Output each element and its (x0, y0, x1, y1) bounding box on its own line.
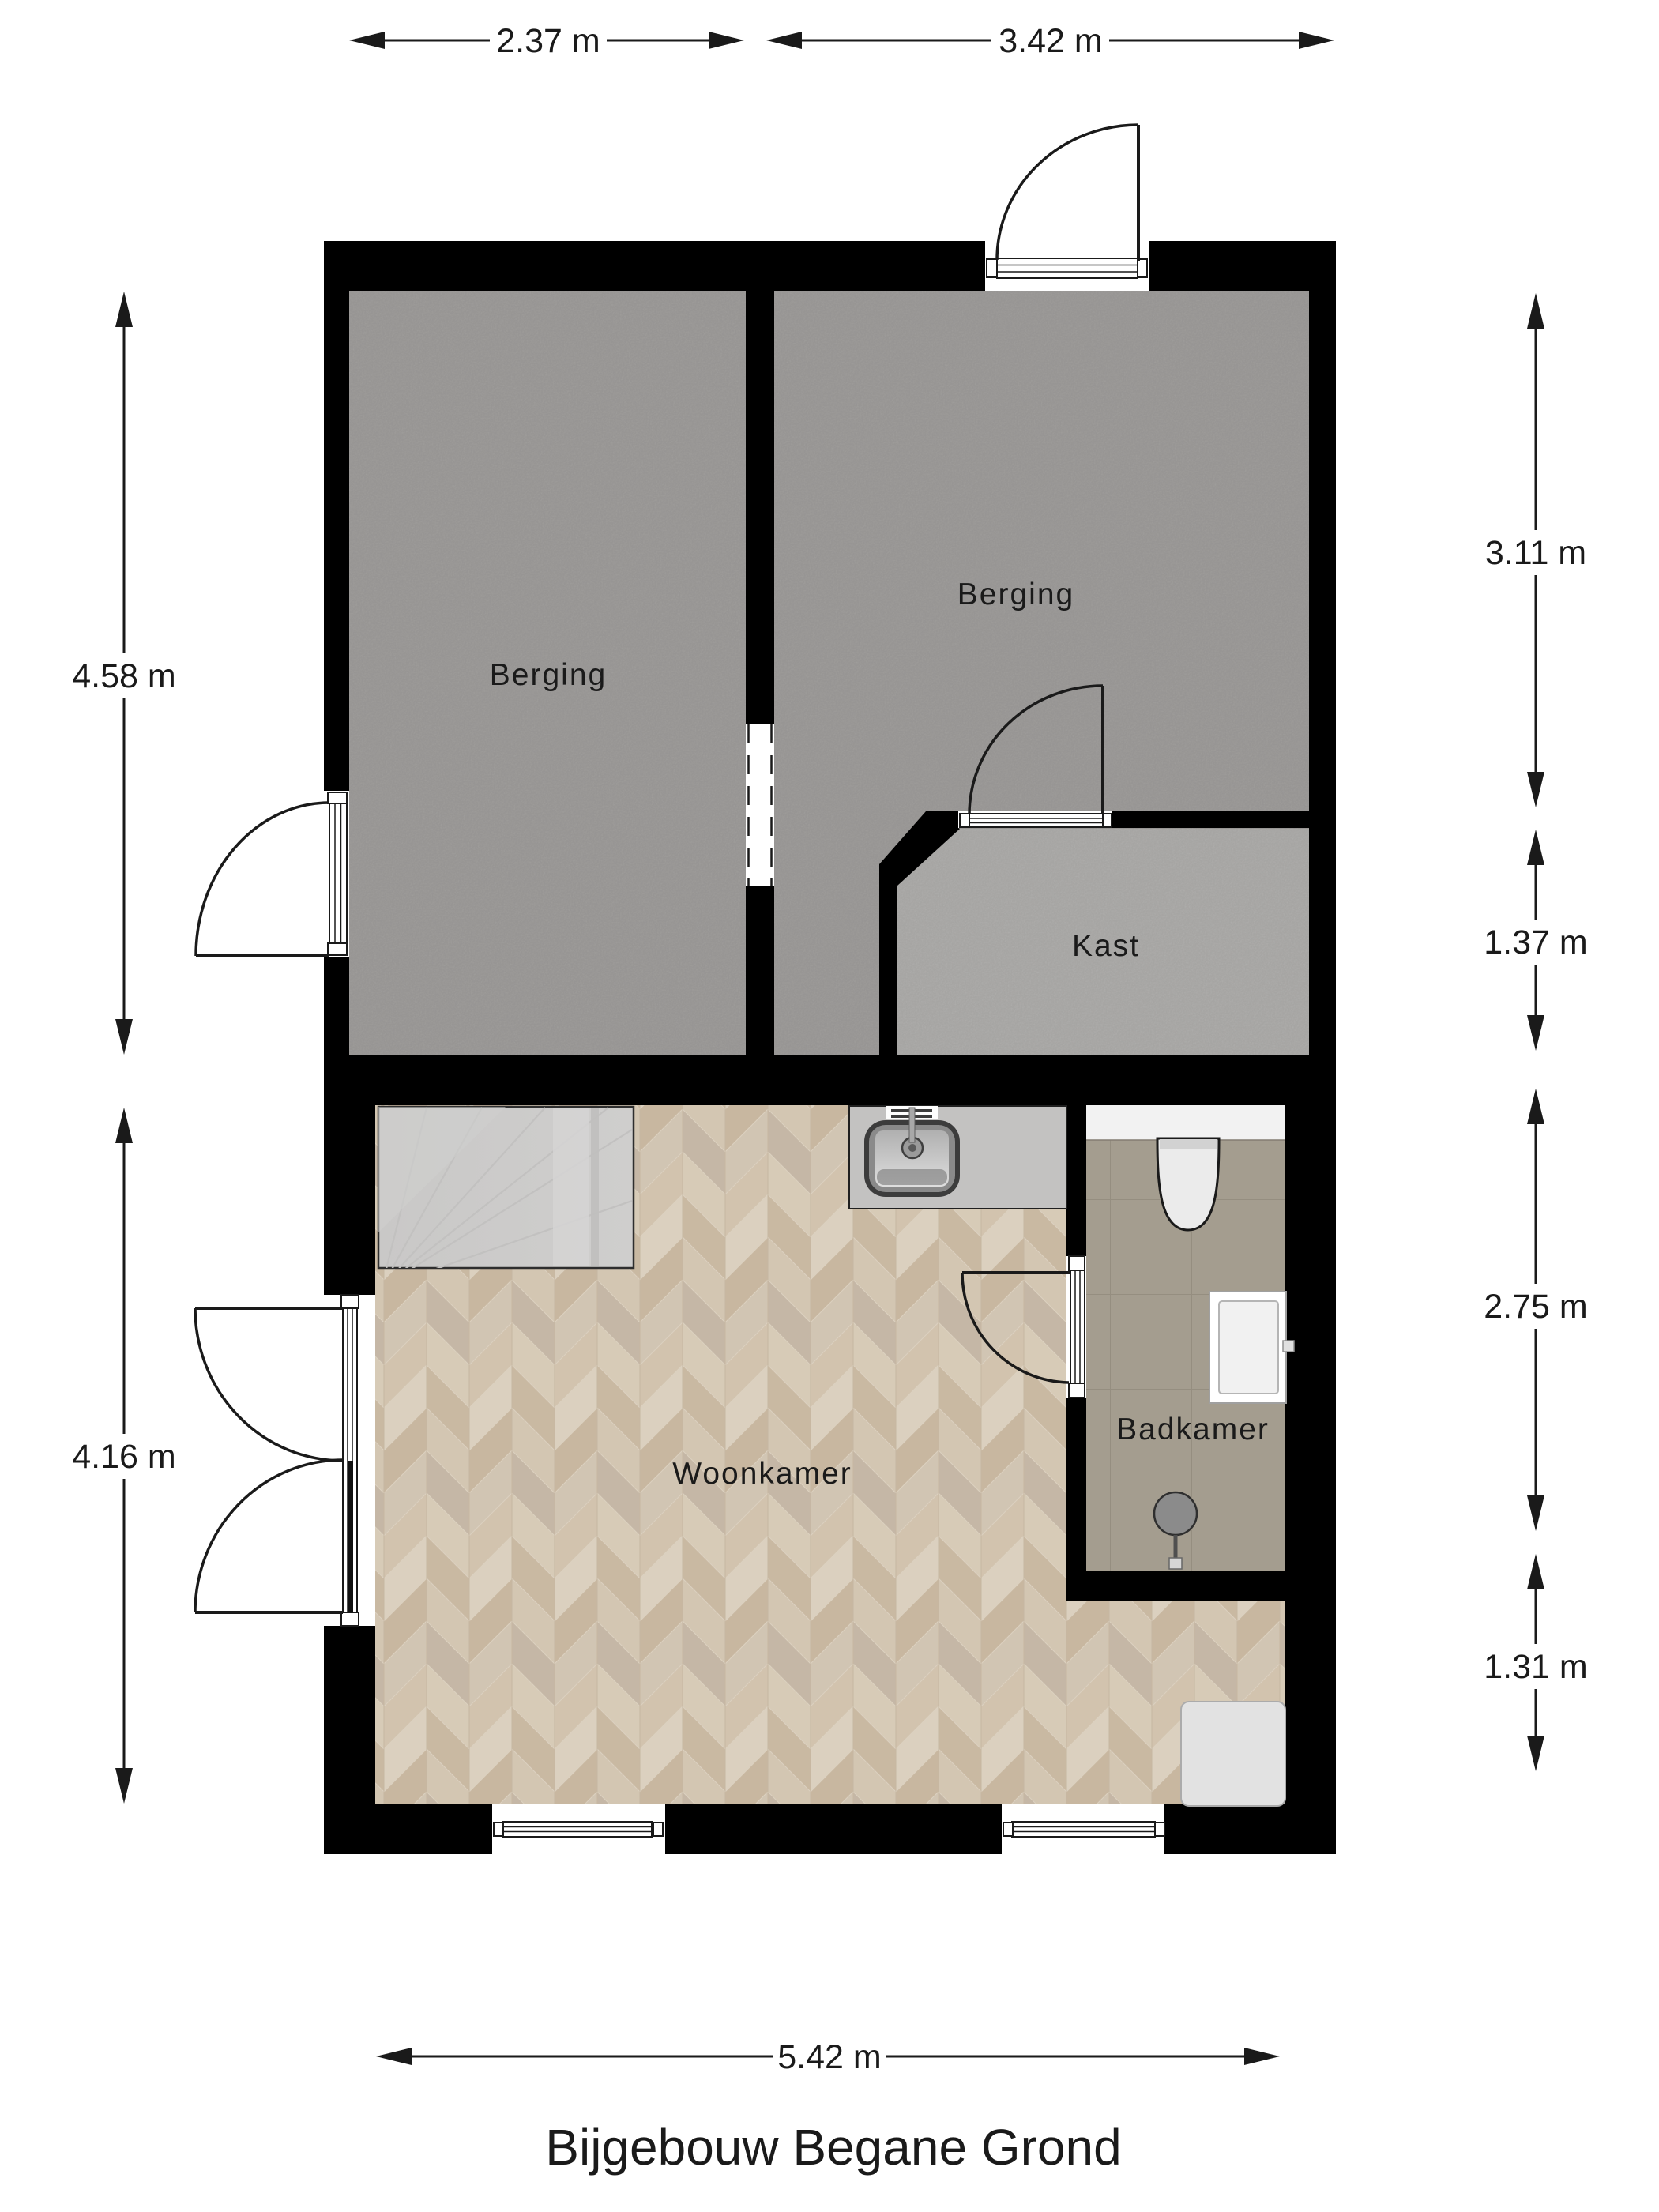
svg-text:Berging: Berging (957, 577, 1074, 611)
svg-text:Bijgebouw Begane Grond: Bijgebouw Begane Grond (545, 2119, 1121, 2176)
svg-text:4.58 m: 4.58 m (72, 657, 175, 695)
svg-text:3.42 m: 3.42 m (999, 22, 1102, 60)
svg-text:5.42 m: 5.42 m (777, 2038, 881, 2076)
svg-text:Woonkamer: Woonkamer (672, 1457, 852, 1491)
svg-text:2.75 m: 2.75 m (1484, 1288, 1587, 1326)
svg-text:2.37 m: 2.37 m (496, 22, 600, 60)
svg-text:Badkamer: Badkamer (1116, 1413, 1270, 1446)
svg-text:3.11 m: 3.11 m (1485, 534, 1586, 572)
svg-text:Berging: Berging (490, 658, 607, 692)
svg-text:1.31 m: 1.31 m (1484, 1648, 1587, 1686)
svg-text:Kast: Kast (1072, 929, 1140, 963)
svg-text:1.37 m: 1.37 m (1484, 924, 1587, 961)
svg-text:4.16 m: 4.16 m (72, 1438, 175, 1476)
